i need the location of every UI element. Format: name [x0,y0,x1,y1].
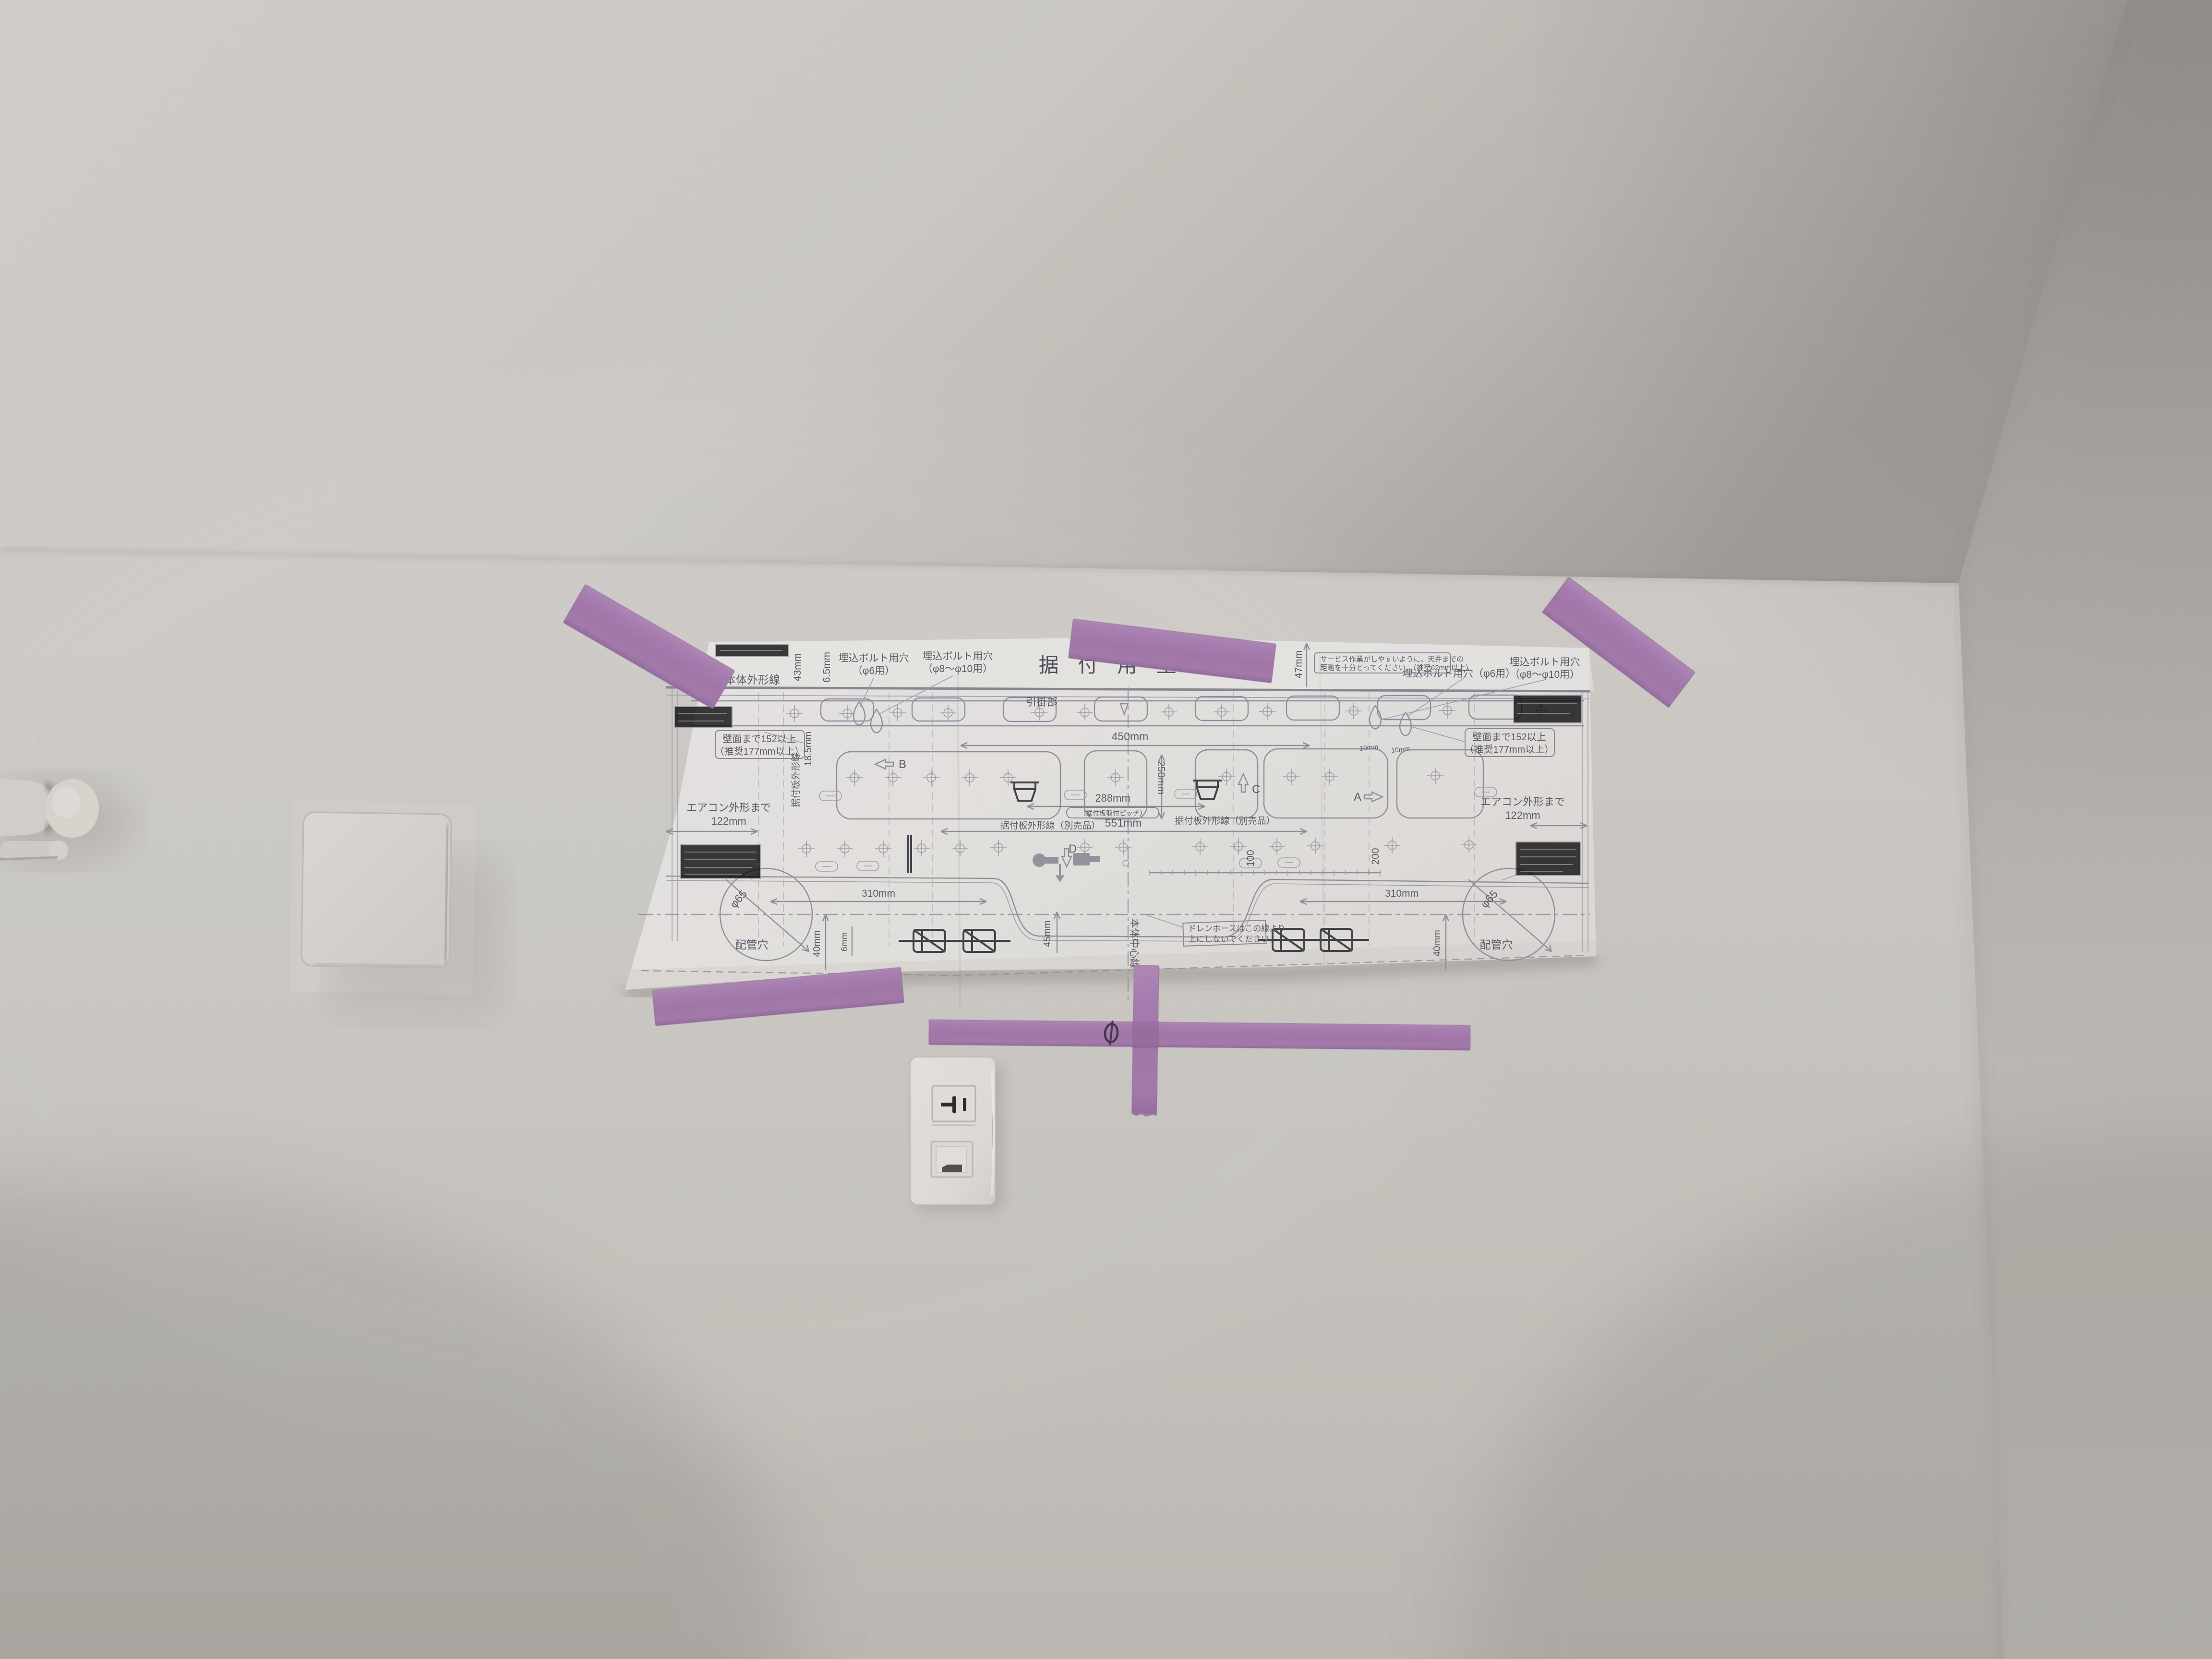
photo-canvas: 据 付 用 型 紙 本体外形線 43mm 6.5mm 埋込ボルト用穴 （φ6用）… [0,0,2212,1659]
photo-vignette [0,0,2212,1659]
room-wall-photo: 据 付 用 型 紙 本体外形線 43mm 6.5mm 埋込ボルト用穴 （φ6用）… [0,0,2212,1659]
